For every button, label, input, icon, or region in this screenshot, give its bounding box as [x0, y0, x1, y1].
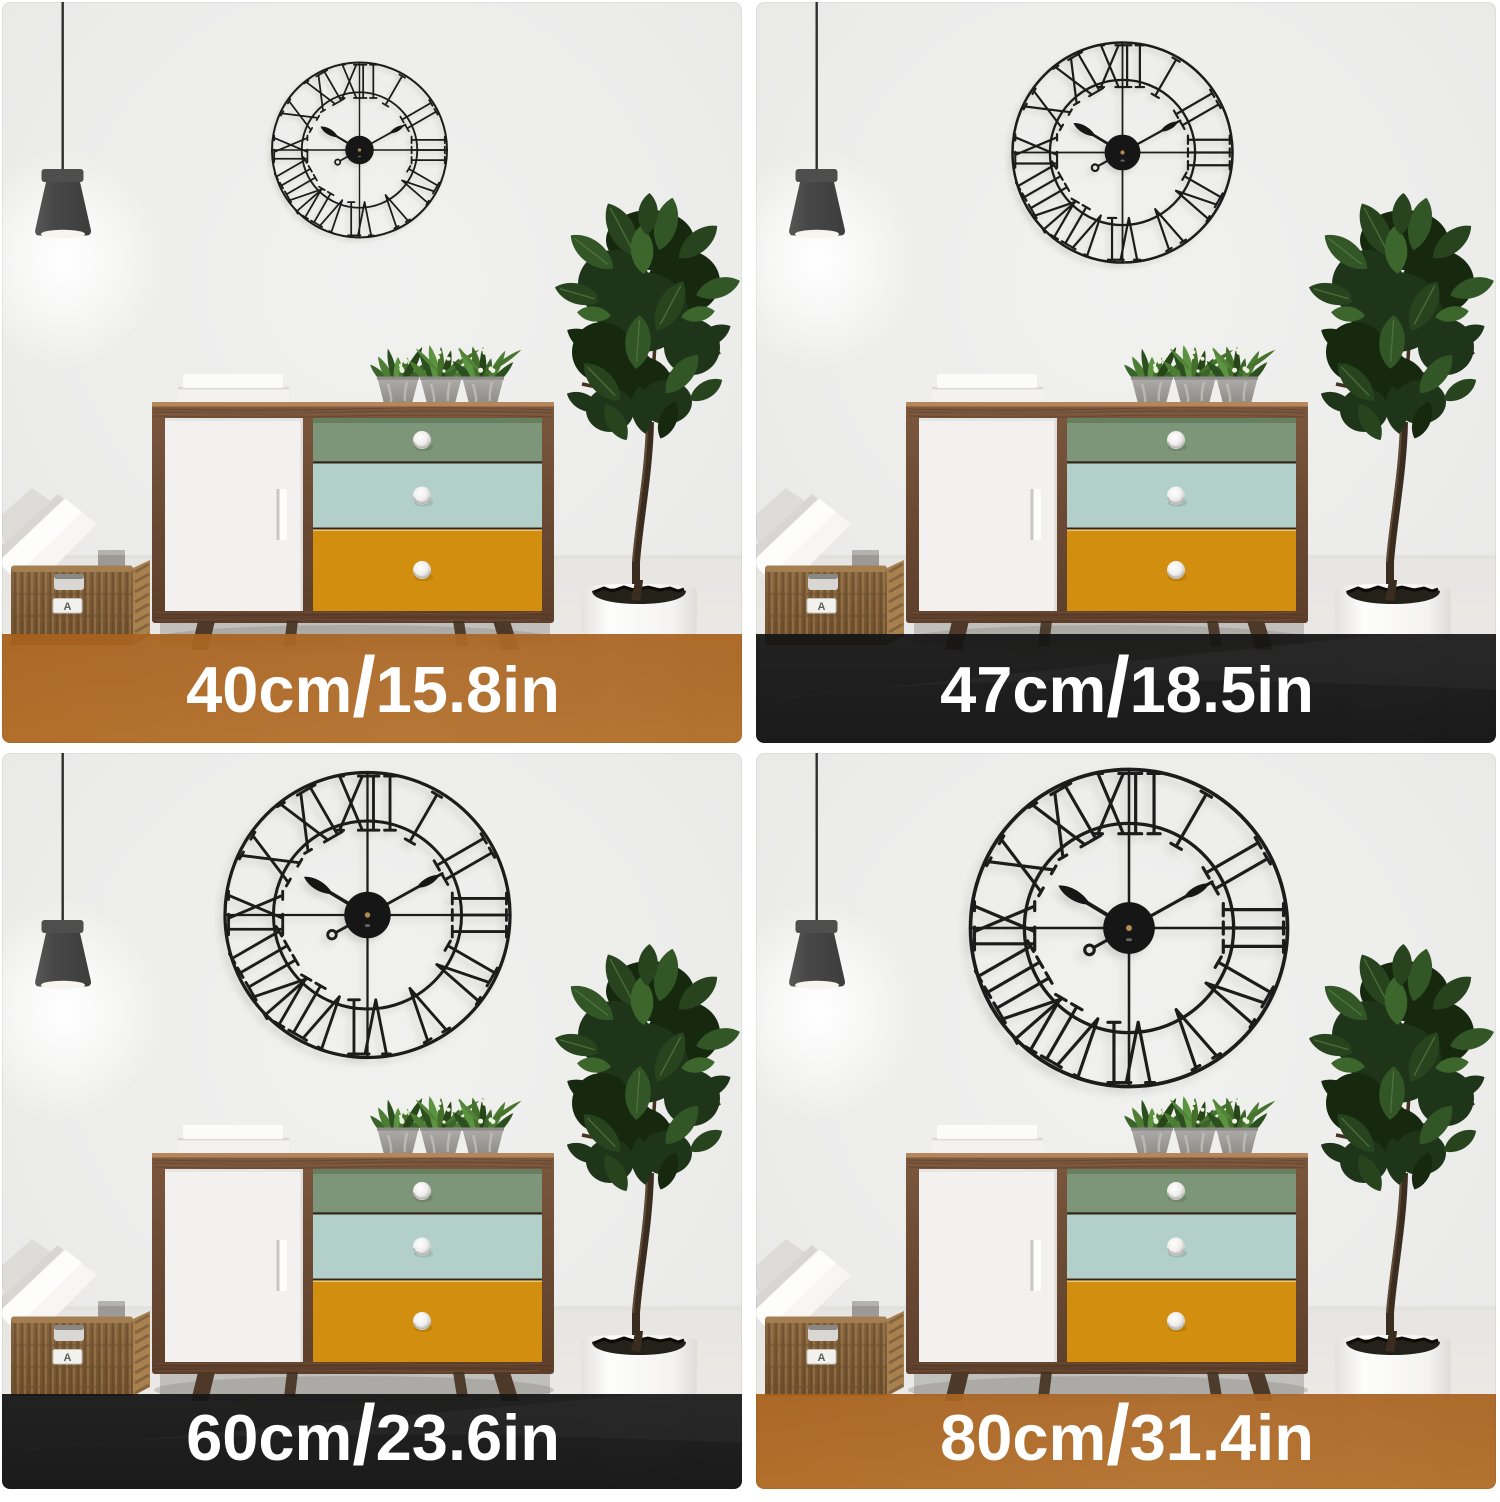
svg-text:47cm/18.5in: 47cm/18.5in: [940, 640, 1314, 734]
svg-text:80cm/31.4in: 80cm/31.4in: [940, 1388, 1314, 1482]
svg-text:40cm/15.8in: 40cm/15.8in: [186, 640, 560, 734]
svg-text:60cm/23.6in: 60cm/23.6in: [186, 1388, 560, 1482]
